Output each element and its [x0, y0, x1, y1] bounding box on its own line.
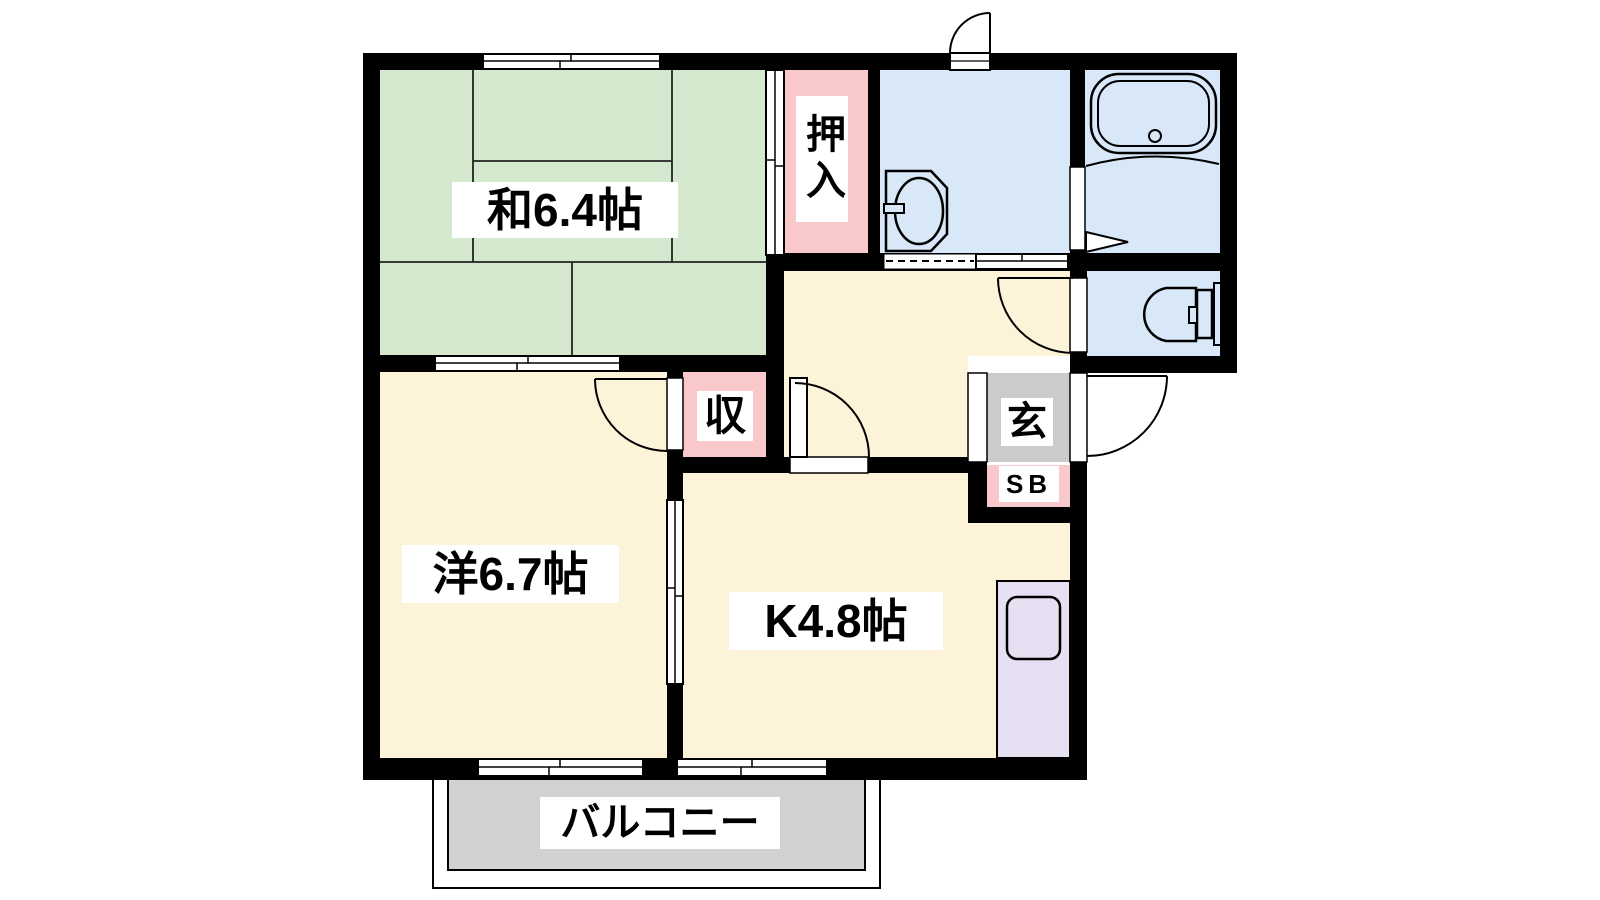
- kitchen-counter: [997, 581, 1070, 758]
- floor-plan: 和6.4帖 押入 収 玄 SB 洋6.7帖 K4.8帖 バルコニー: [0, 0, 1600, 900]
- door-washroom-service: [950, 13, 990, 70]
- kitchen-label: K4.8帖: [729, 592, 943, 650]
- hallway-floor-right: [968, 271, 1070, 356]
- washer-space-dashed: [884, 254, 976, 269]
- genkan-step: [968, 373, 987, 462]
- fusuma-oshiire: [766, 70, 784, 255]
- genkan-label: 玄: [1001, 398, 1053, 446]
- wall-oshiire-washroom: [868, 70, 880, 253]
- slider-japanese-western: [435, 356, 620, 371]
- kitchen-floor-upper: [683, 473, 968, 523]
- western-room-label: 洋6.7帖: [402, 545, 619, 603]
- slider-washroom-entry: [976, 254, 1068, 269]
- wall-left: [363, 53, 380, 780]
- wall-toilet-bottom: [1087, 356, 1237, 373]
- oshiire-label: 押入: [796, 96, 848, 222]
- window-japanese-room-top: [483, 54, 660, 69]
- storage-label: 収: [697, 391, 753, 441]
- wall-shoebox-left: [968, 457, 987, 523]
- washroom-floor: [880, 70, 1070, 253]
- slider-western-kitchen: [667, 500, 683, 684]
- balcony-label: バルコニー: [540, 797, 780, 849]
- wall-japanese-hall-divider: [766, 255, 784, 473]
- window-western-room-bottom: [478, 759, 643, 776]
- shoe-box-label: SB: [999, 466, 1059, 502]
- wall-right-upper: [1220, 53, 1237, 373]
- japanese-room-label: 和6.4帖: [452, 182, 678, 238]
- door-entry: [1070, 373, 1167, 462]
- hallway-floor: [784, 271, 968, 457]
- window-kitchen-bottom: [677, 759, 827, 776]
